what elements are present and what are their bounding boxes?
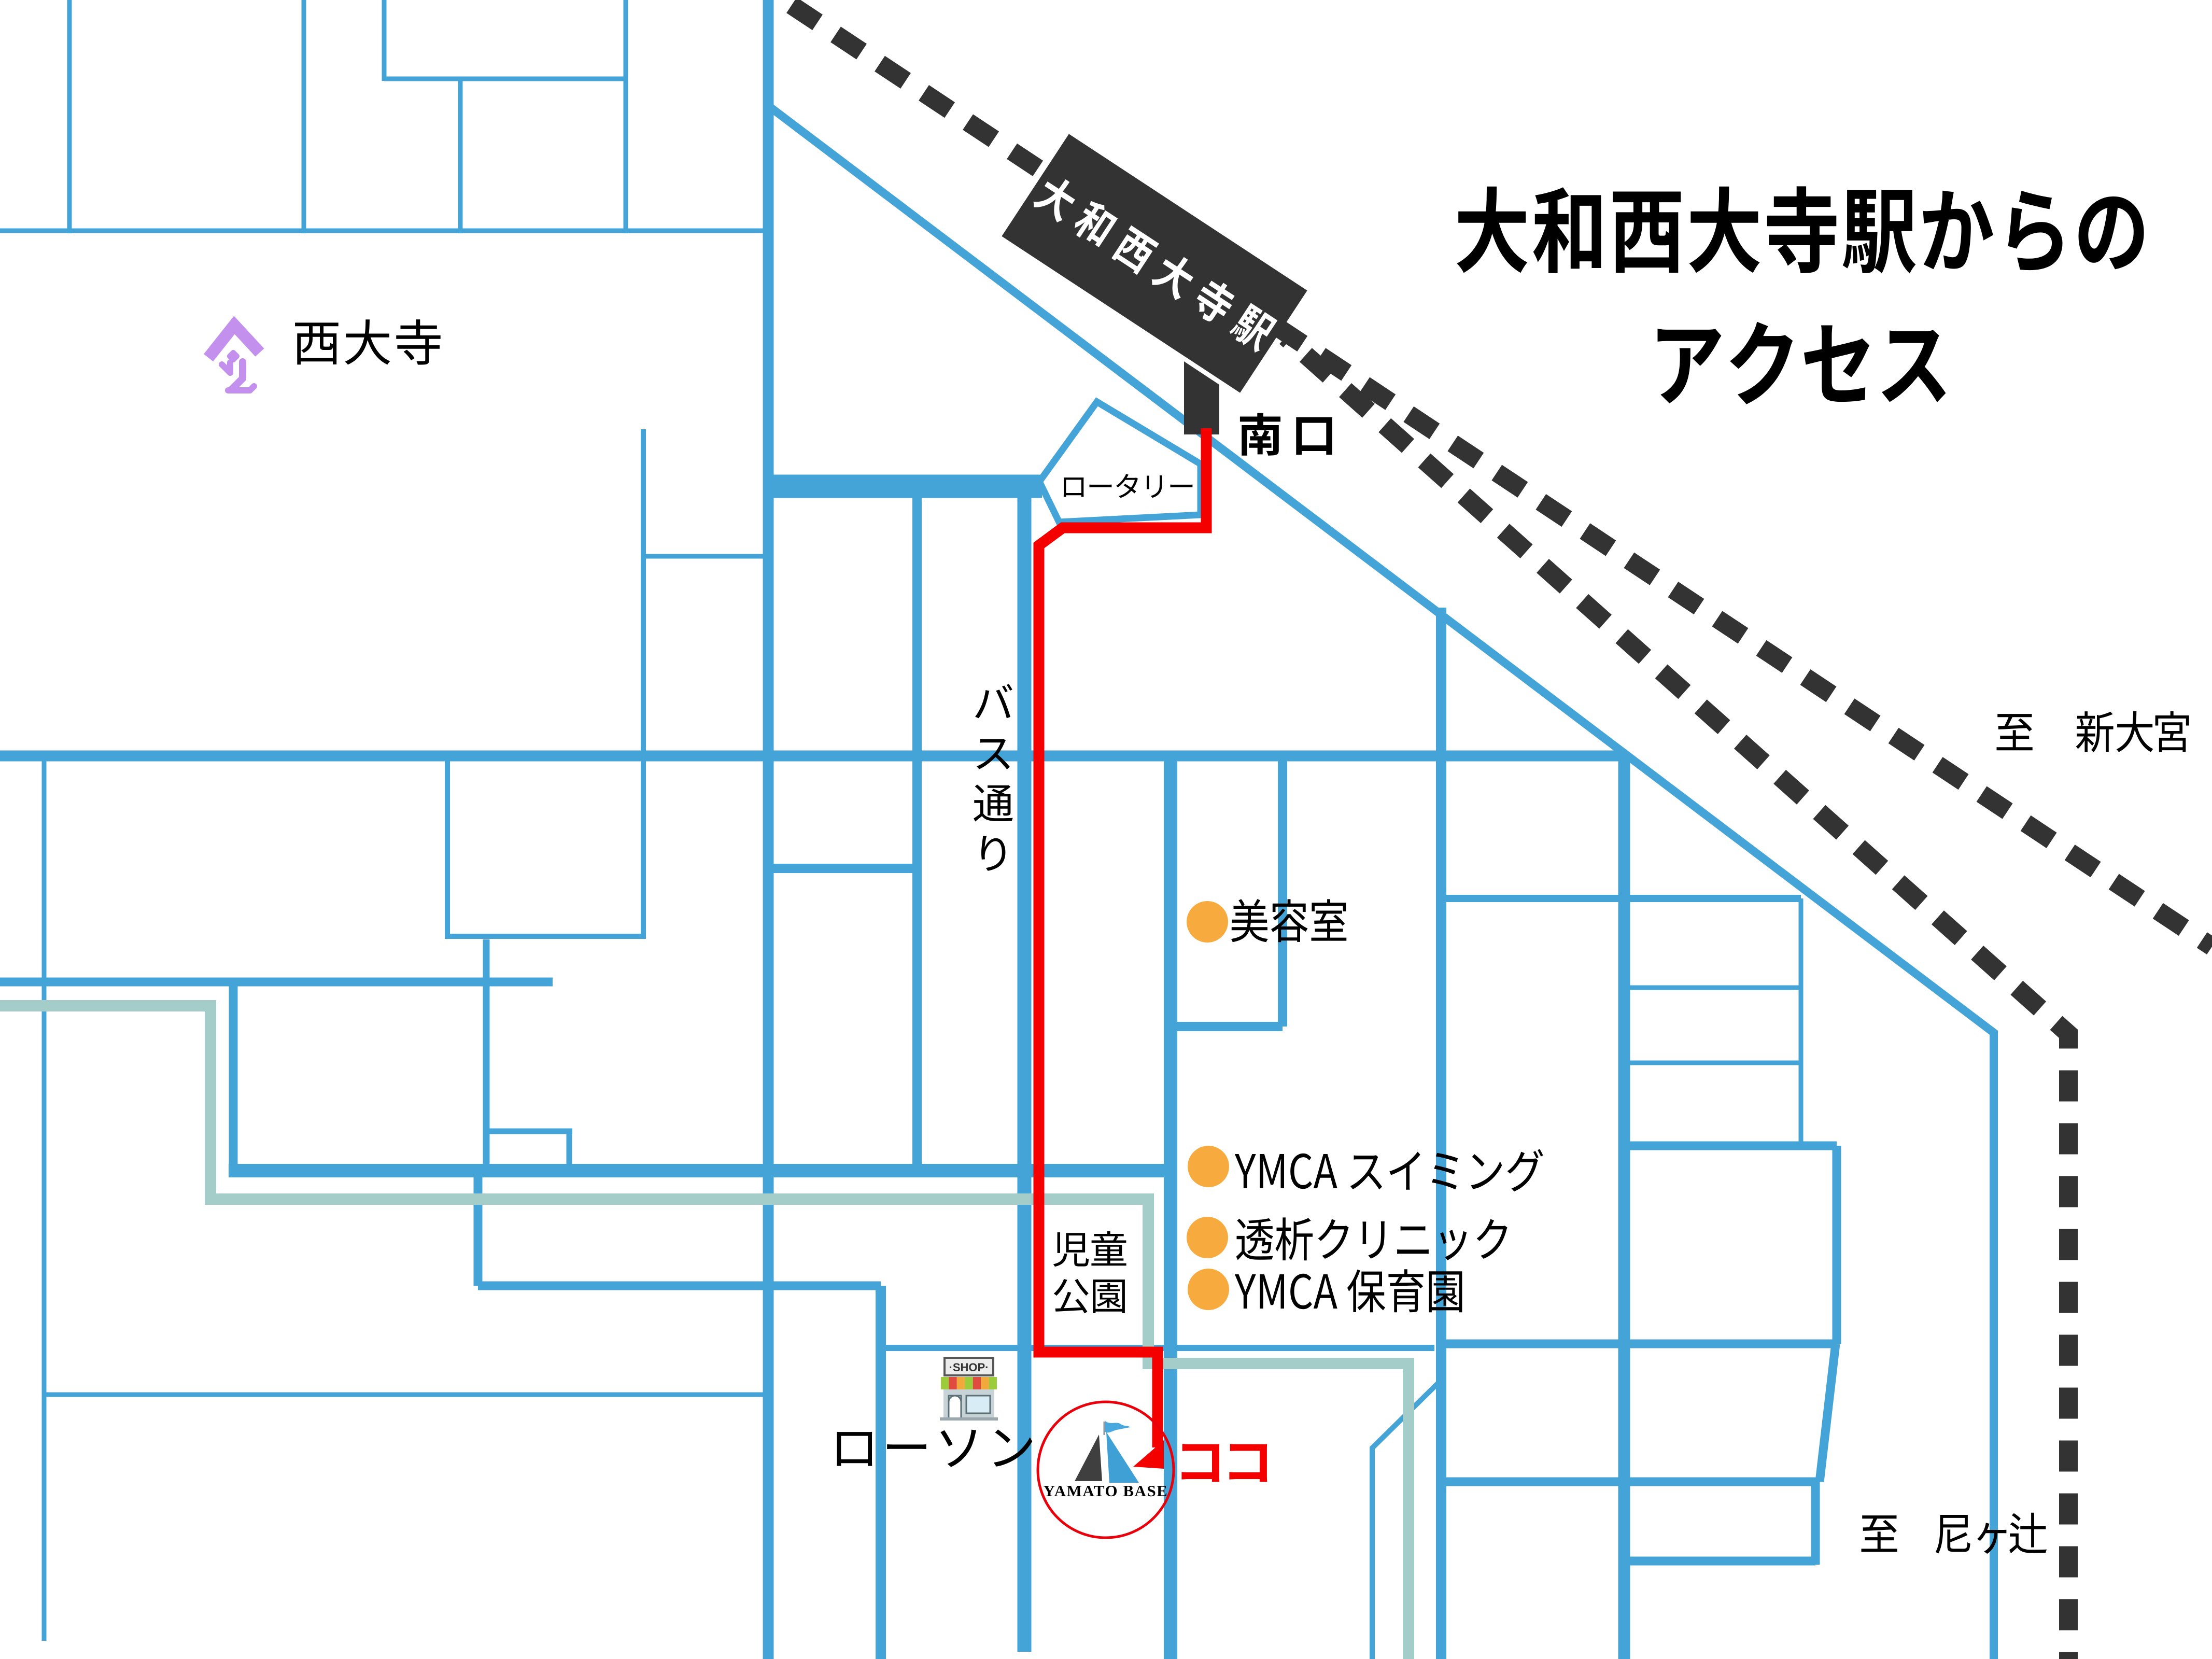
svg-text:YAMATO BASE: YAMATO BASE — [1044, 1482, 1168, 1500]
svg-text:·SHOP·: ·SHOP· — [949, 1361, 989, 1374]
